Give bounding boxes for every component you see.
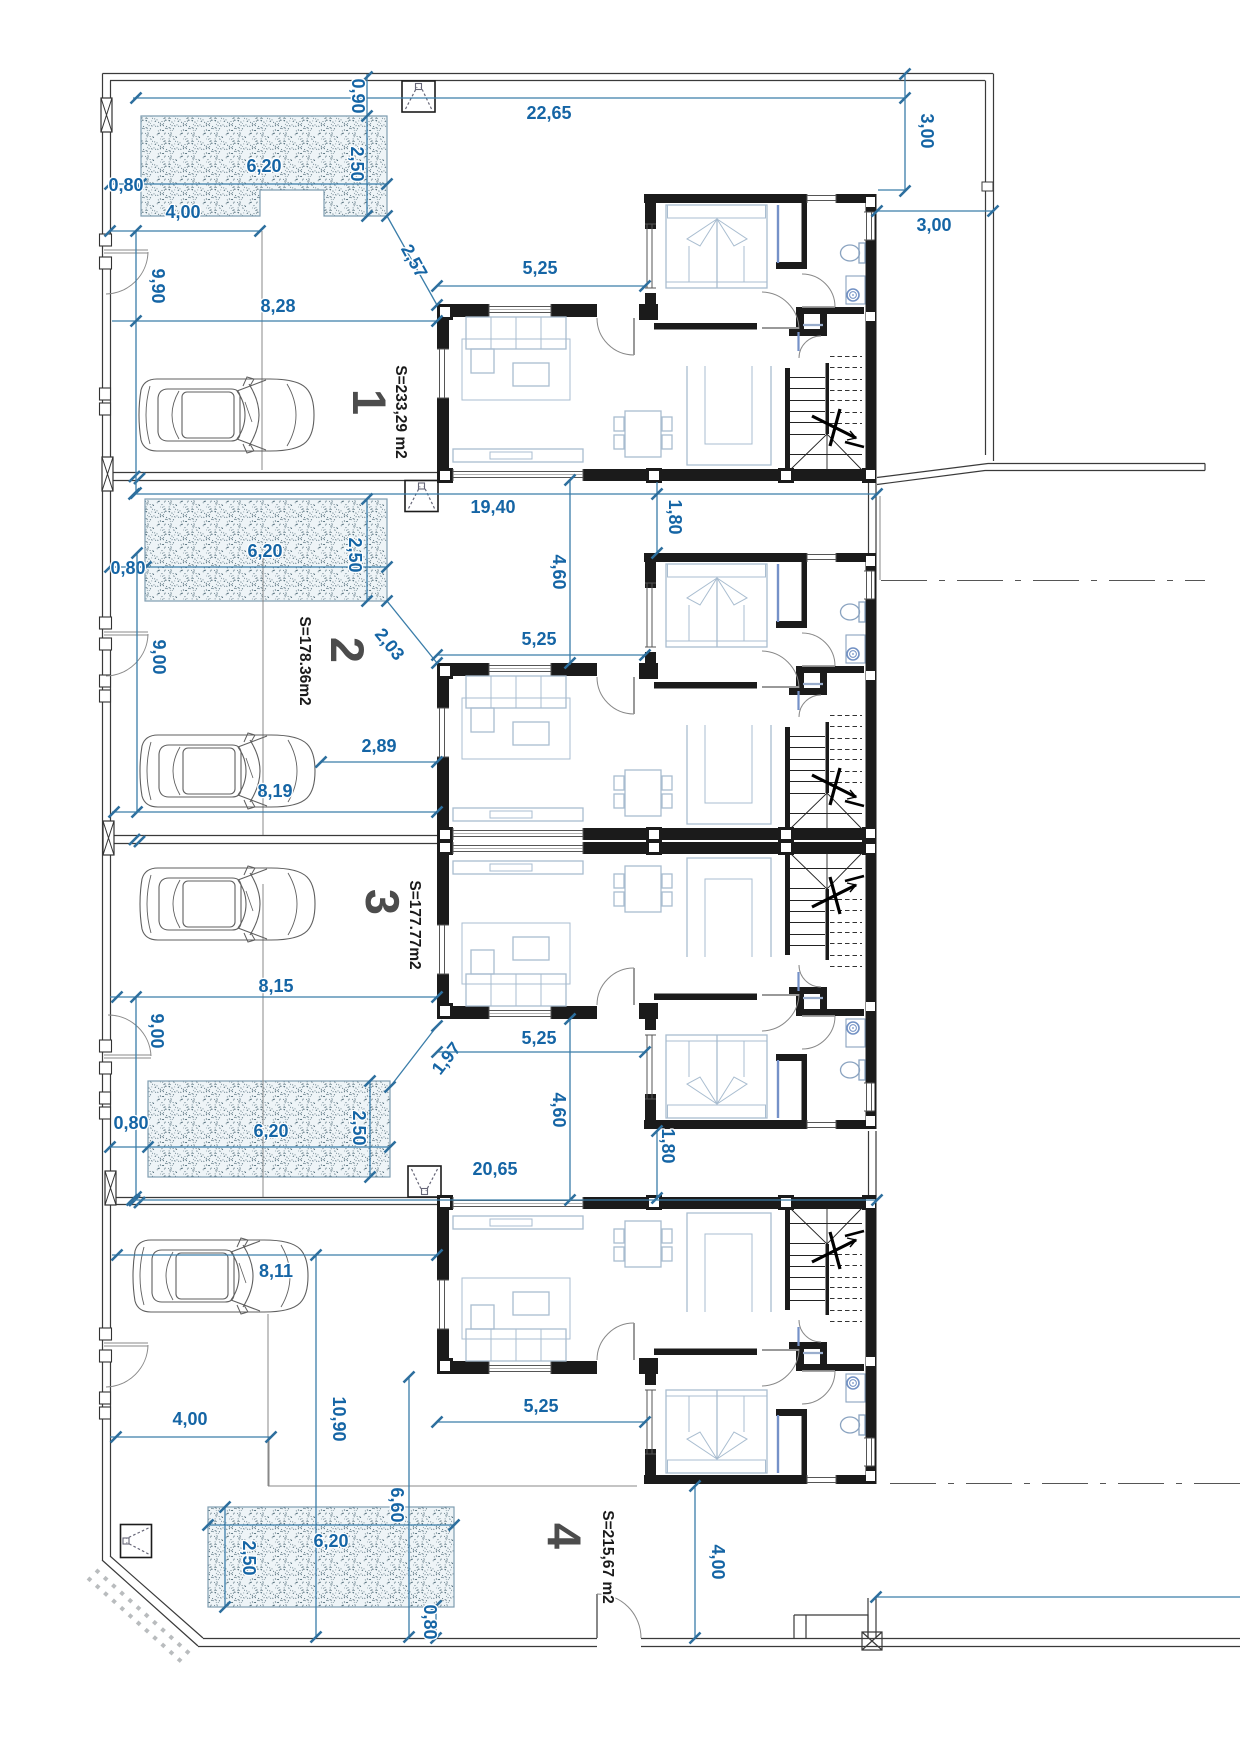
svg-text:4,00: 4,00 [708, 1544, 728, 1579]
svg-text:4,00: 4,00 [172, 1409, 207, 1429]
svg-text:5,25: 5,25 [521, 629, 556, 649]
svg-text:19,40: 19,40 [470, 497, 515, 517]
svg-text:2,50: 2,50 [239, 1540, 259, 1575]
svg-text:4,00: 4,00 [165, 202, 200, 222]
svg-text:3: 3 [356, 889, 409, 915]
svg-text:6,20: 6,20 [313, 1531, 348, 1551]
svg-text:10,90: 10,90 [329, 1396, 349, 1441]
svg-text:6,60: 6,60 [387, 1487, 407, 1522]
svg-text:S=215,67 m2: S=215,67 m2 [599, 1510, 616, 1604]
svg-text:3,00: 3,00 [916, 215, 951, 235]
svg-text:2,50: 2,50 [349, 1110, 369, 1145]
svg-text:S=233,29 m2: S=233,29 m2 [392, 365, 409, 459]
svg-text:9,90: 9,90 [148, 268, 168, 303]
svg-text:3,00: 3,00 [917, 113, 937, 148]
svg-text:1,80: 1,80 [665, 499, 685, 534]
svg-text:8,15: 8,15 [258, 976, 293, 996]
svg-text:4: 4 [538, 1523, 591, 1549]
svg-text:4,60: 4,60 [549, 1092, 569, 1127]
svg-text:1: 1 [343, 389, 396, 415]
svg-text:1,80: 1,80 [658, 1128, 678, 1163]
svg-text:9,00: 9,00 [147, 1013, 167, 1048]
svg-text:0,80: 0,80 [420, 1604, 440, 1639]
svg-text:4,60: 4,60 [549, 554, 569, 589]
svg-text:2,50: 2,50 [345, 537, 365, 572]
svg-text:S=177.77m2: S=177.77m2 [406, 880, 423, 969]
svg-text:0,80: 0,80 [113, 1113, 148, 1133]
svg-text:20,65: 20,65 [472, 1159, 517, 1179]
svg-text:0,80: 0,80 [108, 175, 143, 195]
svg-text:0,80: 0,80 [110, 558, 145, 578]
svg-text:S=178.36m2: S=178.36m2 [296, 616, 313, 705]
svg-text:6,20: 6,20 [253, 1121, 288, 1141]
svg-text:2: 2 [321, 637, 374, 663]
svg-text:6,20: 6,20 [247, 541, 282, 561]
svg-text:6,20: 6,20 [246, 156, 281, 176]
svg-text:5,25: 5,25 [523, 1396, 558, 1416]
svg-text:8,28: 8,28 [260, 296, 295, 316]
svg-text:5,25: 5,25 [521, 1028, 556, 1048]
svg-text:9,00: 9,00 [149, 639, 169, 674]
svg-text:8,19: 8,19 [257, 781, 292, 801]
svg-text:2,50: 2,50 [347, 146, 367, 181]
svg-text:0,90: 0,90 [348, 78, 368, 113]
svg-text:5,25: 5,25 [522, 258, 557, 278]
svg-text:8,11: 8,11 [259, 1261, 293, 1281]
svg-text:2,89: 2,89 [361, 736, 396, 756]
svg-text:22,65: 22,65 [526, 103, 571, 123]
